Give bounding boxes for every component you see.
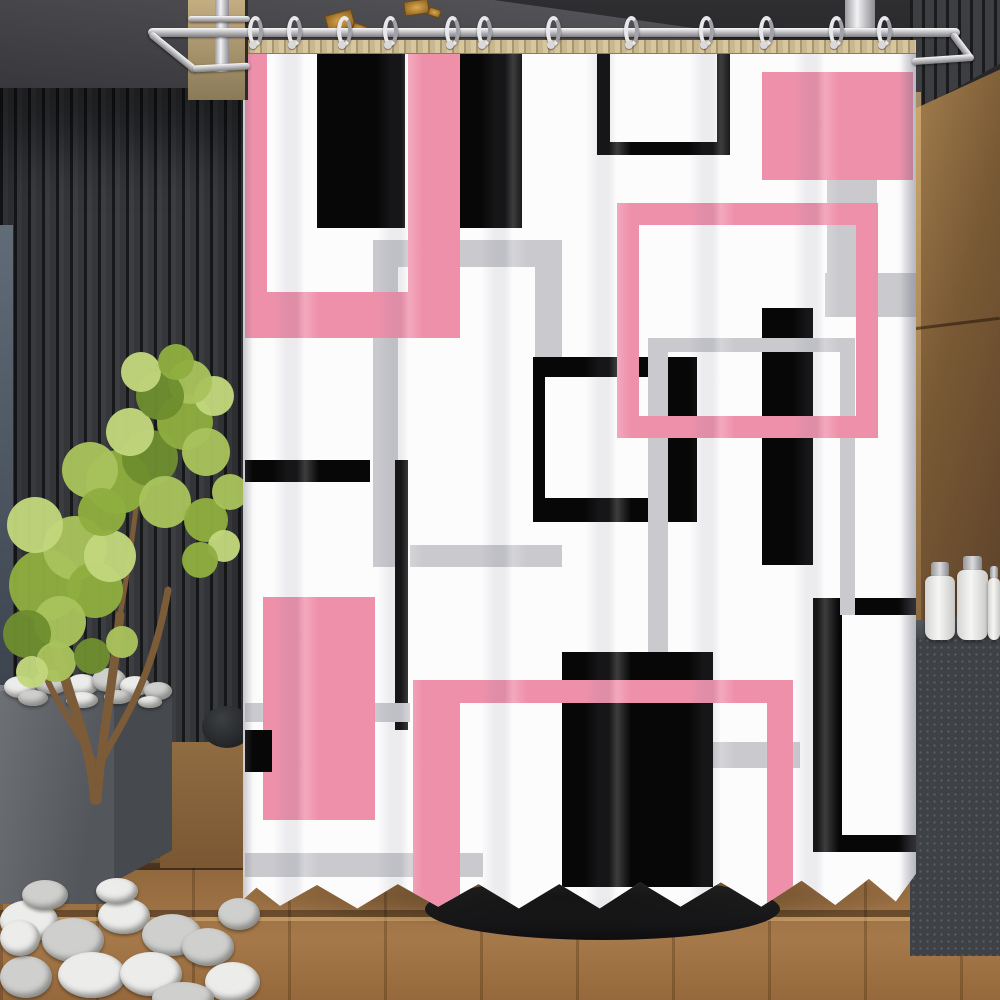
curtain-hook-7	[546, 16, 561, 46]
curtain-hook-11	[829, 16, 844, 46]
bottle-3	[988, 578, 1000, 640]
curtain-hook-5	[445, 16, 460, 46]
black-thin-vertical	[395, 460, 408, 730]
curtain-hook-6	[477, 16, 492, 46]
black-frame-br-left-edge	[813, 598, 842, 852]
bottle-1	[925, 576, 955, 640]
curtain-hook-3	[337, 16, 352, 46]
ground-pebble-14	[0, 920, 40, 956]
black-frame-mid-right-bar	[663, 357, 697, 522]
curtain-hook-9	[699, 16, 714, 46]
pink-frame-bottom-edge	[617, 416, 878, 438]
gray-open-frame-top	[373, 240, 562, 267]
curtain-hook-1	[248, 16, 263, 46]
ground-pebble-8	[182, 928, 234, 966]
pink-staple-left-leg	[413, 680, 460, 912]
gray-frame-2-top-edge	[648, 338, 853, 352]
ground-pebble-11	[22, 880, 68, 910]
bathroom-scene	[0, 0, 1000, 1000]
gray-band-mid	[410, 545, 562, 567]
ground-pebble-5	[58, 952, 126, 998]
pink-staple-right-leg	[767, 680, 793, 912]
gray-open-frame-right-leg	[535, 240, 562, 365]
ground-pebble-6	[0, 956, 52, 998]
curtain-hooks	[0, 0, 1000, 80]
pink-frame-right-edge	[856, 203, 878, 438]
shower-curtain	[243, 40, 916, 912]
pink-u-right-arm	[408, 50, 460, 302]
curtain-hook-8	[624, 16, 639, 46]
black-open-frame-bottom-edge	[597, 142, 730, 155]
curtain-geometric-pattern	[243, 40, 916, 912]
curtain-hook-12	[877, 16, 892, 46]
gray-frame-2-right-leg	[840, 338, 855, 615]
pink-solid-rect-left	[263, 597, 375, 820]
bottle-2	[957, 570, 988, 640]
curtain-hook-4	[383, 16, 398, 46]
curtain-hook-10	[759, 16, 774, 46]
gray-frame-2-left-leg	[648, 338, 668, 652]
pink-frame-left-edge	[617, 203, 639, 438]
black-bar-left	[245, 460, 370, 482]
curtain-right-edge-shade	[900, 40, 916, 912]
curtain-left-edge-shade	[243, 40, 253, 912]
curtain-hook-2	[287, 16, 302, 46]
pink-staple-top-bar	[413, 680, 793, 703]
ground-pebble-12	[96, 878, 138, 904]
pink-solid-rect-top-right	[762, 72, 913, 180]
pink-frame-top-edge	[617, 203, 878, 225]
